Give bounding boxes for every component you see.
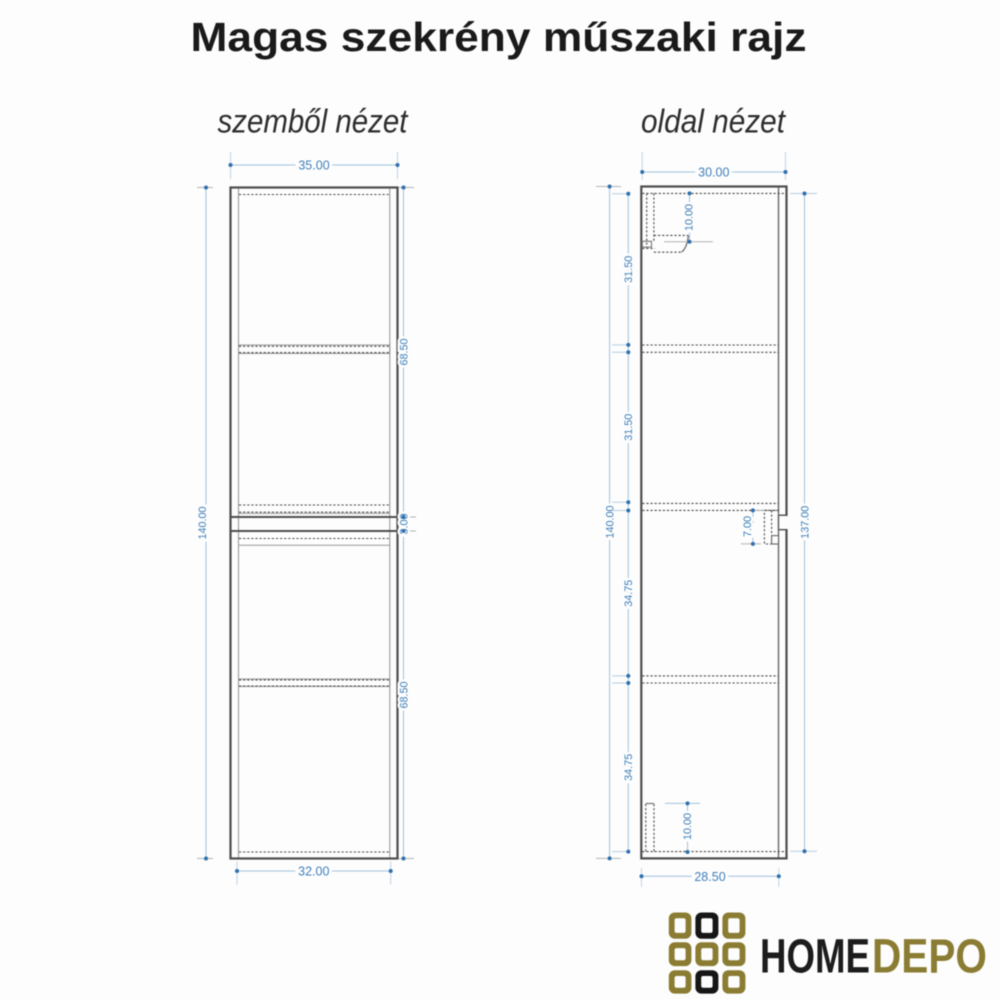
svg-text:oldal nézet: oldal nézet xyxy=(641,103,787,140)
svg-text:30.00: 30.00 xyxy=(698,166,729,180)
svg-text:35.00: 35.00 xyxy=(298,159,329,173)
svg-text:Magas szekrény műszaki rajz: Magas szekrény műszaki rajz xyxy=(191,14,807,60)
svg-text:HOME: HOME xyxy=(760,931,870,984)
svg-text:31.50: 31.50 xyxy=(623,256,635,283)
svg-text:68.50: 68.50 xyxy=(398,338,410,365)
svg-text:7.00: 7.00 xyxy=(742,516,754,537)
svg-text:34.75: 34.75 xyxy=(623,580,635,607)
svg-text:10.00: 10.00 xyxy=(682,813,694,840)
svg-text:10.00: 10.00 xyxy=(684,204,696,231)
svg-text:140.00: 140.00 xyxy=(197,506,209,539)
svg-text:DEPO: DEPO xyxy=(872,931,987,984)
svg-text:68.50: 68.50 xyxy=(398,681,410,708)
svg-text:34.75: 34.75 xyxy=(623,754,635,781)
svg-text:szemből nézet: szemből nézet xyxy=(218,103,410,140)
svg-text:28.50: 28.50 xyxy=(694,870,725,884)
svg-text:137.00: 137.00 xyxy=(799,506,811,539)
svg-text:32.00: 32.00 xyxy=(298,865,329,879)
svg-text:31.50: 31.50 xyxy=(623,414,635,441)
